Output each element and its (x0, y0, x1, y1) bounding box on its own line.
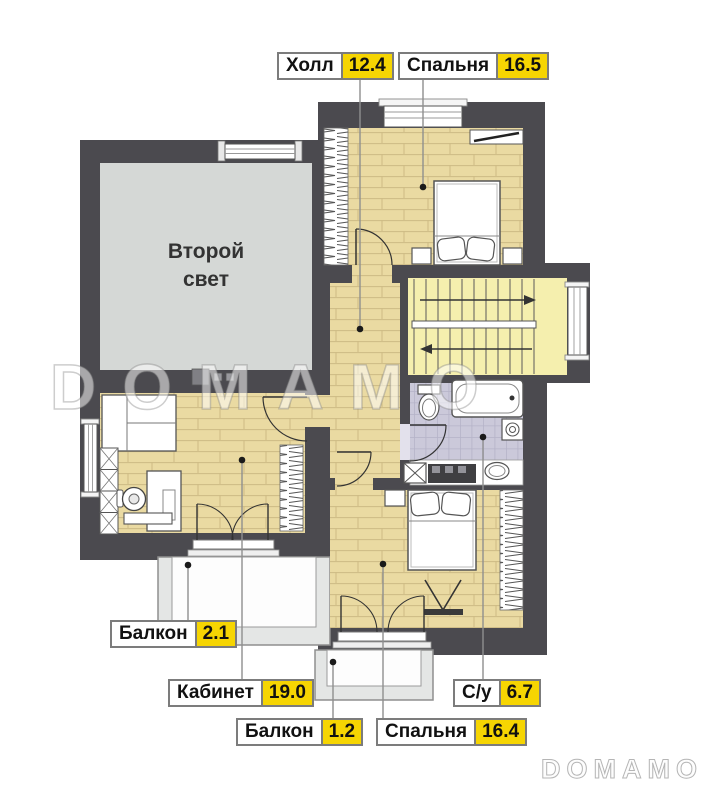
window-second-light (218, 141, 302, 161)
pillow (410, 492, 440, 517)
office-chair (117, 488, 146, 511)
label-su: С/у 6.7 (453, 679, 541, 707)
wardrobe-bedroom-bottom (500, 490, 523, 610)
bed-bottom (408, 490, 476, 570)
room-area: 12.4 (341, 54, 392, 78)
watermark: DOMAMO (50, 350, 505, 424)
label-balcony-small: Балкон 1.2 (236, 718, 363, 746)
bed-top (434, 181, 500, 265)
label-bedroom-top: Спальня 16.5 (398, 52, 549, 80)
room-area: 2.1 (195, 622, 235, 646)
label-bedroom-bottom: Спальня 16.4 (376, 718, 527, 746)
window-office (81, 419, 99, 497)
washing-machine (502, 419, 523, 440)
window-stairs (565, 282, 589, 360)
brand-logo: DOMAMO (541, 754, 703, 785)
room-area: 16.4 (474, 720, 525, 744)
pillow (466, 236, 495, 261)
label-hall: Холл 12.4 (277, 52, 394, 80)
vanity-counter (404, 460, 523, 485)
pillow (441, 492, 471, 517)
label-balcony-left: Балкон 2.1 (110, 620, 237, 648)
nightstand (385, 490, 405, 506)
room-name: Спальня (378, 720, 474, 744)
room-area: 6.7 (499, 681, 539, 705)
room-name: Холл (279, 54, 341, 78)
wardrobe-bedroom-top (324, 128, 348, 265)
room-area: 1.2 (321, 720, 361, 744)
room-name: С/у (455, 681, 499, 705)
nightstand (412, 248, 431, 264)
shelving (100, 448, 118, 534)
second-light-label: Второй свет (118, 238, 294, 295)
nightstand (503, 248, 522, 264)
room-name: Кабинет (170, 681, 261, 705)
room-name: Балкон (112, 622, 195, 646)
room-name: Спальня (400, 54, 496, 78)
label-office: Кабинет 19.0 (168, 679, 314, 707)
room-area: 16.5 (496, 54, 547, 78)
room-area: 19.0 (261, 681, 312, 705)
room-name: Балкон (238, 720, 321, 744)
floor-plan: Холл 12.4 Спальня 16.5 Балкон 2.1 Кабине… (0, 0, 708, 800)
pillow (437, 236, 466, 261)
wardrobe-office (280, 445, 303, 531)
